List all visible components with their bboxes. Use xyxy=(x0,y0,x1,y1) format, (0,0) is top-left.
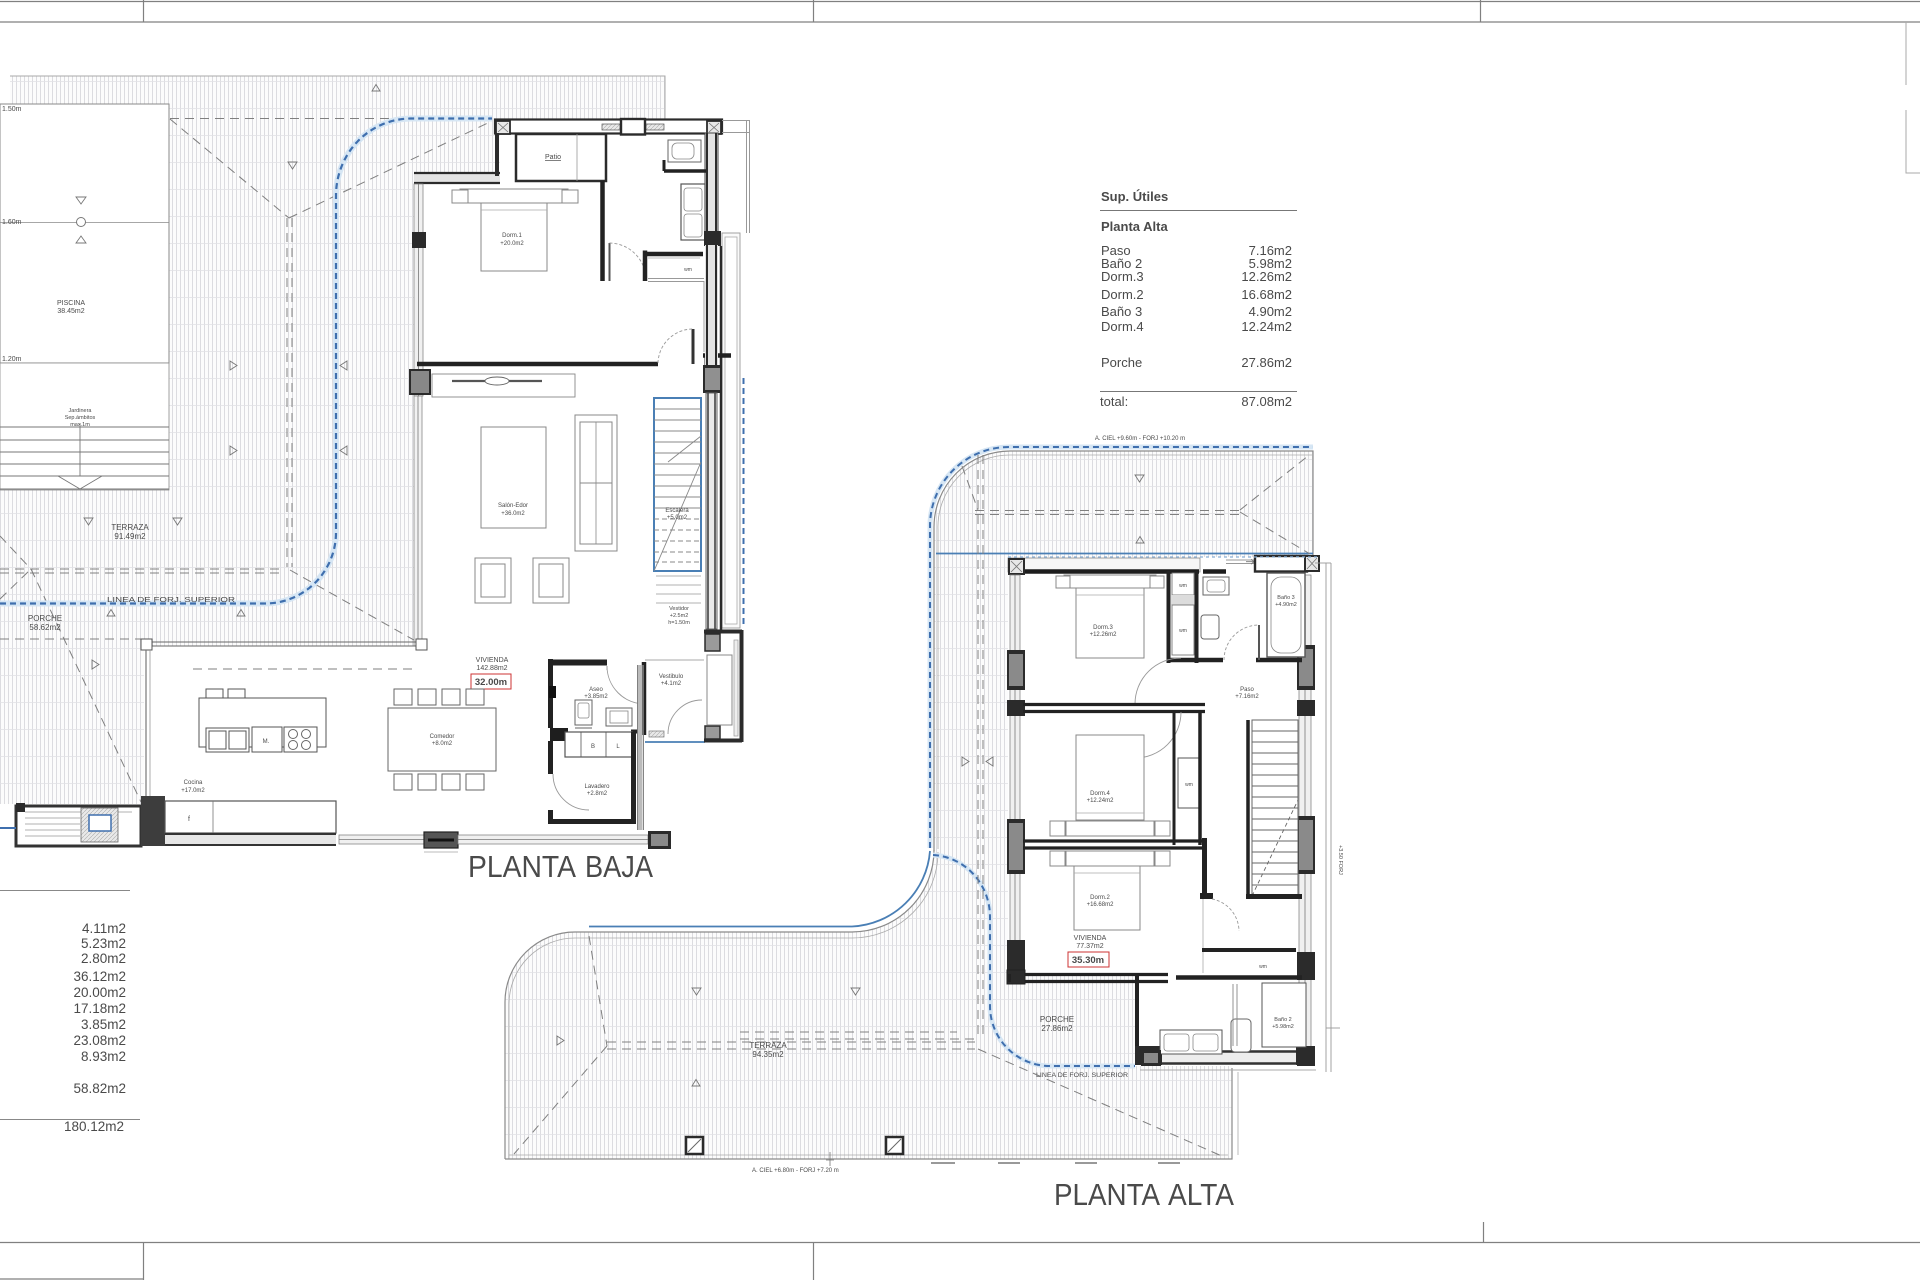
svg-text:PORCHE: PORCHE xyxy=(28,614,62,623)
svg-text:wm: wm xyxy=(1179,583,1187,589)
svg-text:32.00m: 32.00m xyxy=(475,677,507,688)
svg-text:142.88m2: 142.88m2 xyxy=(476,665,507,672)
svg-text:Lavadero: Lavadero xyxy=(584,784,610,790)
svg-text:M.: M. xyxy=(263,739,270,745)
svg-text:LINEA DE FORJ. SUPERIOR: LINEA DE FORJ. SUPERIOR xyxy=(1036,1072,1128,1079)
svg-text:+17.0m2: +17.0m2 xyxy=(181,788,205,794)
svg-text:12.24m2: 12.24m2 xyxy=(1241,319,1292,334)
svg-text:Dorm.1: Dorm.1 xyxy=(502,233,522,239)
svg-text:1.50m: 1.50m xyxy=(2,106,22,113)
svg-text:91.49m2: 91.49m2 xyxy=(114,532,146,541)
svg-text:VIVIENDA: VIVIENDA xyxy=(1074,935,1107,942)
svg-text:8.93m2: 8.93m2 xyxy=(81,1049,126,1064)
svg-text:+12.24m2: +12.24m2 xyxy=(1087,798,1115,804)
svg-text:wm: wm xyxy=(1259,964,1267,970)
svg-text:PORCHE: PORCHE xyxy=(1040,1015,1074,1024)
svg-text:+2.8m2: +2.8m2 xyxy=(587,791,608,797)
svg-text:Escalera: Escalera xyxy=(665,508,689,514)
svg-text:Dorm.4: Dorm.4 xyxy=(1090,791,1110,797)
svg-text:Aseo: Aseo xyxy=(589,687,603,693)
svg-text:Dorm.4: Dorm.4 xyxy=(1101,319,1144,334)
svg-text:wm: wm xyxy=(1185,782,1193,788)
svg-text:Sup. Útiles: Sup. Útiles xyxy=(1101,189,1168,204)
svg-text:Dorm.3: Dorm.3 xyxy=(1101,269,1144,284)
svg-text:Dorm.2: Dorm.2 xyxy=(1101,287,1144,302)
svg-text:TERRAZA: TERRAZA xyxy=(749,1041,787,1050)
svg-text:Dorm.2: Dorm.2 xyxy=(1090,895,1110,901)
svg-text:total:: total: xyxy=(1100,394,1128,409)
svg-text:+3.85m2: +3.85m2 xyxy=(584,694,608,700)
svg-text:180.12m2: 180.12m2 xyxy=(64,1119,124,1134)
svg-text:+20.0m2: +20.0m2 xyxy=(500,241,524,247)
svg-text:B: B xyxy=(591,744,595,750)
svg-text:58.82m2: 58.82m2 xyxy=(73,1081,126,1096)
svg-text:36.12m2: 36.12m2 xyxy=(73,969,126,984)
svg-text:17.18m2: 17.18m2 xyxy=(73,1001,126,1016)
svg-text:wm: wm xyxy=(1179,628,1187,634)
svg-text:27.86m2: 27.86m2 xyxy=(1041,1024,1073,1033)
svg-text:38.45m2: 38.45m2 xyxy=(57,308,84,315)
svg-text:20.00m2: 20.00m2 xyxy=(73,985,126,1000)
svg-text:4.90m2: 4.90m2 xyxy=(1249,304,1292,319)
svg-text:Paso: Paso xyxy=(1240,687,1254,693)
svg-text:Vestidor: Vestidor xyxy=(669,606,689,612)
svg-text:PISCINA: PISCINA xyxy=(57,300,85,307)
svg-text:+4.90m2: +4.90m2 xyxy=(1275,602,1297,608)
svg-text:Planta Alta: Planta Alta xyxy=(1101,219,1168,234)
svg-text:12.26m2: 12.26m2 xyxy=(1241,269,1292,284)
svg-text:+7.16m2: +7.16m2 xyxy=(1235,694,1259,700)
svg-text:f: f xyxy=(188,816,190,823)
svg-text:A. CIEL +6.80m - FORJ +7.20: A. CIEL +6.80m - FORJ +7.20 m xyxy=(752,1168,839,1174)
svg-text:Vestibulo: Vestibulo xyxy=(659,674,684,680)
svg-text:+4.1m2: +4.1m2 xyxy=(661,681,682,687)
svg-text:Cocina: Cocina xyxy=(184,780,203,786)
svg-text:77.37m2: 77.37m2 xyxy=(1076,943,1103,950)
svg-text:+5.98m2: +5.98m2 xyxy=(1272,1024,1294,1030)
svg-text:+16.68m2: +16.68m2 xyxy=(1087,902,1115,908)
svg-text:Porche: Porche xyxy=(1101,355,1142,370)
svg-text:5.23m2: 5.23m2 xyxy=(81,936,126,951)
svg-text:PLANTA: PLANTA xyxy=(468,849,576,884)
svg-text:PLANTA: PLANTA xyxy=(1054,1177,1160,1212)
svg-text:TERRAZA: TERRAZA xyxy=(111,523,149,532)
svg-text:VIVIENDA: VIVIENDA xyxy=(476,657,509,664)
svg-text:Sep.ámbitos: Sep.ámbitos xyxy=(65,415,96,421)
svg-text:wm: wm xyxy=(684,267,692,273)
svg-text:Jardinera: Jardinera xyxy=(69,408,93,414)
svg-text:1.20m: 1.20m xyxy=(2,356,22,363)
svg-text:58.62m2: 58.62m2 xyxy=(29,623,61,632)
svg-text:87.08m2: 87.08m2 xyxy=(1241,394,1292,409)
svg-text:A. CIEL +9.60m - FORJ +10.20: A. CIEL +9.60m - FORJ +10.20 m xyxy=(1095,436,1185,442)
svg-text:Baño 3: Baño 3 xyxy=(1277,595,1294,601)
svg-text:Dorm.3: Dorm.3 xyxy=(1093,625,1113,631)
svg-text:23.08m2: 23.08m2 xyxy=(73,1033,126,1048)
svg-text:Salón-Edor: Salón-Edor xyxy=(498,503,528,509)
svg-text:1.60m: 1.60m xyxy=(2,219,22,226)
svg-text:4.11m2: 4.11m2 xyxy=(82,921,126,936)
svg-text:2.80m2: 2.80m2 xyxy=(81,951,126,966)
svg-text:3.85m2: 3.85m2 xyxy=(81,1017,126,1032)
svg-text:+36.0m2: +36.0m2 xyxy=(501,511,525,517)
svg-text:h=1.50m: h=1.50m xyxy=(668,620,690,626)
svg-text:94.35m2: 94.35m2 xyxy=(752,1050,784,1059)
svg-text:+8.0m2: +8.0m2 xyxy=(432,741,453,747)
svg-text:27.86m2: 27.86m2 xyxy=(1241,355,1292,370)
svg-text:Patio: Patio xyxy=(545,154,561,161)
svg-text:Comedor: Comedor xyxy=(430,734,455,740)
svg-text:35.30m: 35.30m xyxy=(1072,955,1104,966)
svg-text:+12.26m2: +12.26m2 xyxy=(1090,632,1118,638)
svg-text:+3.50 FORJ: +3.50 FORJ xyxy=(1337,845,1343,875)
svg-text:16.68m2: 16.68m2 xyxy=(1241,287,1292,302)
svg-text:Baño 2: Baño 2 xyxy=(1274,1017,1291,1023)
svg-text:+2.5m2: +2.5m2 xyxy=(670,613,689,619)
svg-text:BAJA: BAJA xyxy=(585,849,653,884)
svg-text:+5.0m2: +5.0m2 xyxy=(667,515,688,521)
svg-text:LINEA DE FORJ. SUPERIOR: LINEA DE FORJ. SUPERIOR xyxy=(107,595,236,604)
svg-text:Baño 3: Baño 3 xyxy=(1101,304,1142,319)
svg-text:ALTA: ALTA xyxy=(1168,1177,1234,1212)
